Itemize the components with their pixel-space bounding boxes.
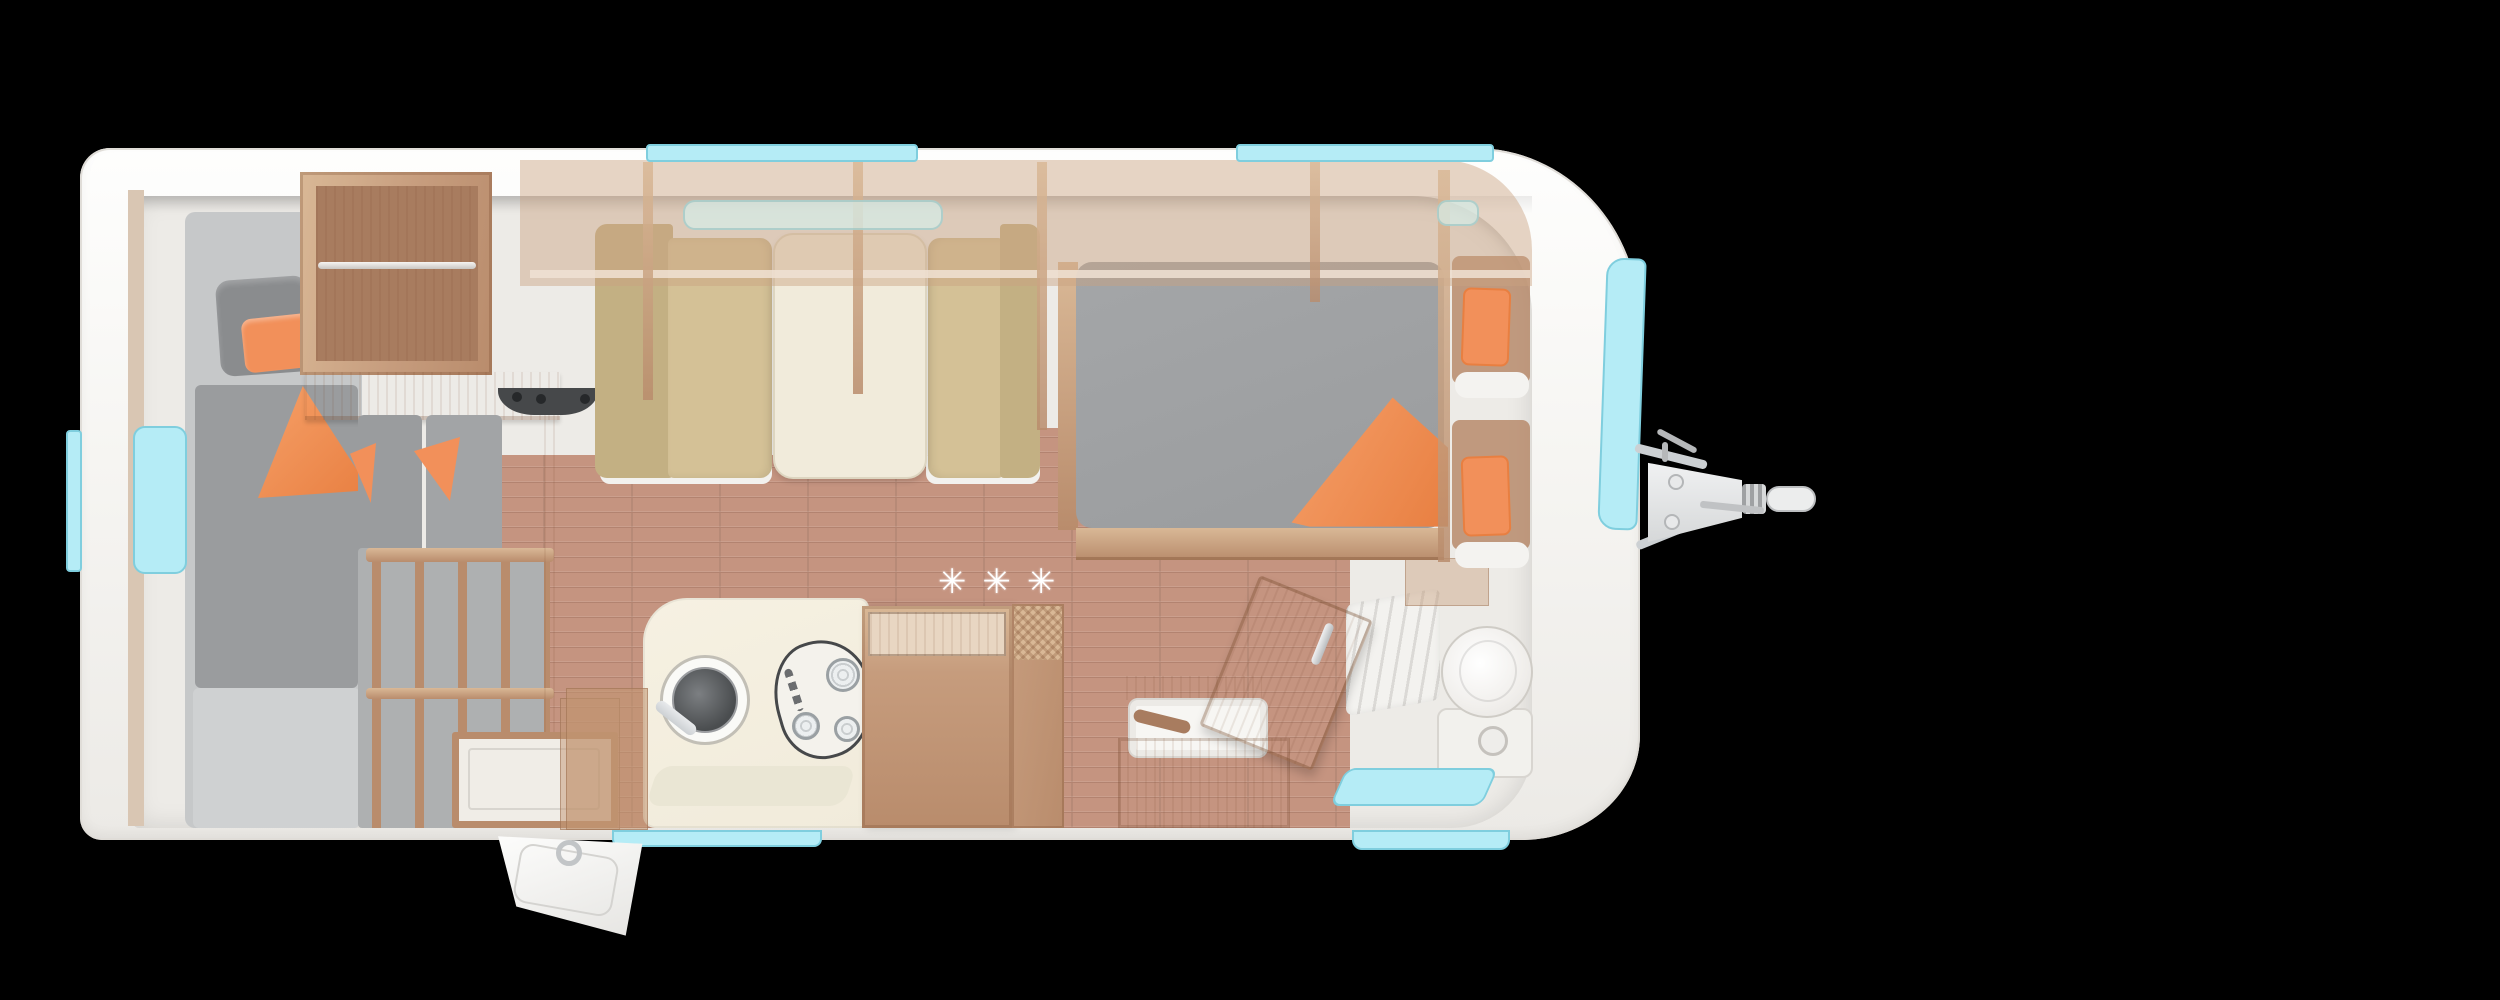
front-seat-base-top (1455, 372, 1529, 398)
heater-bolt-1 (512, 392, 522, 402)
front-pillow-top (1461, 287, 1512, 367)
bed-foot-board (1076, 528, 1444, 560)
locker-divider-4 (1310, 162, 1320, 302)
stove-burner-2 (792, 712, 820, 740)
scene-canvas: ✳✳✳ (0, 0, 2500, 1000)
locker-divider-3 (1037, 162, 1047, 430)
left-bed-dark-section (195, 385, 358, 688)
stove-burner-3 (834, 716, 860, 742)
heater-bolt-3 (580, 394, 590, 404)
overhead-locker-band (520, 160, 1532, 286)
front-divider (1438, 170, 1450, 562)
skylight-strip-left (646, 144, 918, 162)
hitch-coupler (1766, 486, 1816, 512)
locker-divider-1 (643, 162, 653, 400)
stove-burner-1 (826, 658, 860, 692)
kitchen-mat (646, 766, 857, 806)
hitch-bolt-2 (1664, 514, 1680, 530)
heater-bolt-2 (536, 394, 546, 404)
window-rear-bottom (1352, 830, 1510, 850)
fridge-top-face (868, 612, 1006, 656)
hitch-arm-upper (1634, 443, 1708, 470)
overhead-locker-rail (530, 270, 1530, 278)
stars-decoration: ✳✳✳ (938, 562, 1071, 602)
hitch-body (1648, 456, 1748, 542)
hitch-jockey-pin (1662, 442, 1668, 462)
bunk-rail-top-bar (366, 548, 554, 562)
hitch-bolt-1 (1668, 474, 1684, 490)
bunk-rail-mid-bar (366, 688, 554, 699)
entry-door-handle (556, 840, 582, 866)
cabinet-woven-top (1014, 606, 1062, 660)
bath-mat (1330, 768, 1499, 806)
skylight-strip-right (1236, 144, 1494, 162)
toilet-flush-button (1478, 726, 1508, 756)
bed-head-divider (1058, 262, 1078, 530)
front-seat-base-bottom (1455, 542, 1529, 568)
roof-window-dinette (683, 200, 943, 230)
left-wall-window-pane (133, 426, 187, 574)
toilet-lid-seam (1459, 640, 1517, 702)
locker-divider-2 (853, 162, 863, 394)
left-wall-window-outer (66, 430, 82, 572)
wardrobe-hanging-rail (318, 262, 476, 269)
window-kitchen-bottom (612, 830, 822, 847)
counter-extension-flap (566, 688, 648, 830)
wardrobe-interior (316, 186, 478, 361)
left-bed-sheet-section (193, 688, 360, 828)
front-pillow-bottom (1461, 455, 1512, 537)
roof-window-front (1437, 200, 1479, 226)
